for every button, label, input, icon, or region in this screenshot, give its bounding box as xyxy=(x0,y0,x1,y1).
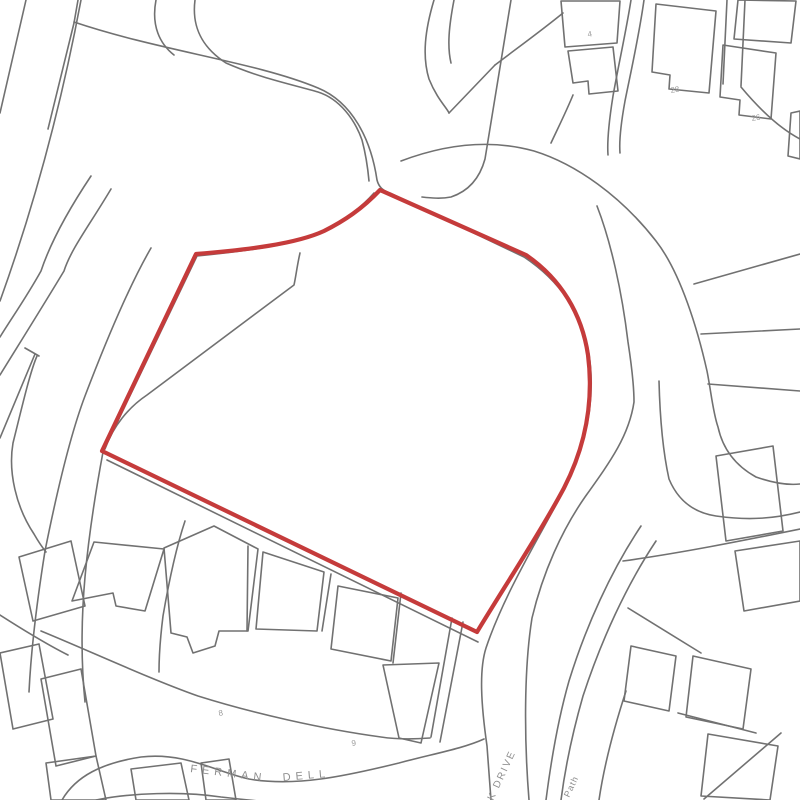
map-line xyxy=(12,356,46,552)
building-outline xyxy=(256,552,324,631)
map-line xyxy=(25,348,39,356)
map-line xyxy=(440,622,463,742)
map-line xyxy=(29,248,151,692)
map-line xyxy=(701,329,800,334)
map-line xyxy=(82,193,374,702)
map-line xyxy=(708,384,800,391)
map-line xyxy=(247,546,248,631)
map-line xyxy=(546,526,641,800)
map-line xyxy=(431,618,452,737)
map-line xyxy=(628,608,701,653)
map-line xyxy=(561,541,656,800)
map-line xyxy=(422,0,511,198)
house-number-label: 9 xyxy=(351,738,357,748)
map-line xyxy=(449,0,454,63)
site-plan-map: FERMANDELLK DRIVECycle Path2826489 xyxy=(0,0,800,800)
map-line xyxy=(599,691,626,800)
building-outline xyxy=(735,541,800,611)
street-label: K DRIVE xyxy=(486,749,519,800)
site-boundary-red xyxy=(102,190,590,632)
map-line xyxy=(694,254,800,284)
map-line xyxy=(704,733,781,799)
building-outline xyxy=(720,45,776,119)
building-outline xyxy=(383,663,439,743)
building-outline xyxy=(561,1,620,47)
map-line xyxy=(96,793,258,800)
building-outline xyxy=(652,4,716,93)
map-line xyxy=(0,189,111,375)
map-line xyxy=(0,176,91,337)
street-label: FERMAN xyxy=(190,763,267,784)
building-outline xyxy=(568,47,618,94)
map-line xyxy=(0,0,26,113)
building-outline xyxy=(41,669,96,766)
house-number-label: 26 xyxy=(751,112,762,123)
map-line xyxy=(41,631,430,739)
map-line xyxy=(62,739,484,800)
house-number-label: 8 xyxy=(218,708,224,718)
map-line xyxy=(741,0,745,86)
building-outline xyxy=(19,541,85,621)
map-line xyxy=(105,253,300,449)
map-line xyxy=(723,0,727,84)
map-line xyxy=(449,65,495,113)
map-line xyxy=(401,144,800,484)
map-canvas: FERMANDELLK DRIVECycle Path2826489 xyxy=(0,0,800,800)
building-outline xyxy=(0,644,53,729)
map-line xyxy=(425,0,449,113)
map-line xyxy=(48,0,78,129)
map-line xyxy=(608,0,631,155)
street-label: DELL xyxy=(282,768,330,784)
map-line xyxy=(194,0,369,181)
building-outline xyxy=(701,734,778,800)
house-number-label: 4 xyxy=(587,29,593,39)
map-line xyxy=(526,206,634,800)
house-number-label: 28 xyxy=(670,84,681,95)
map-line xyxy=(620,0,644,153)
building-outline xyxy=(624,646,676,711)
map-line xyxy=(74,22,591,800)
map-line xyxy=(551,95,573,143)
building-outline xyxy=(716,446,783,541)
